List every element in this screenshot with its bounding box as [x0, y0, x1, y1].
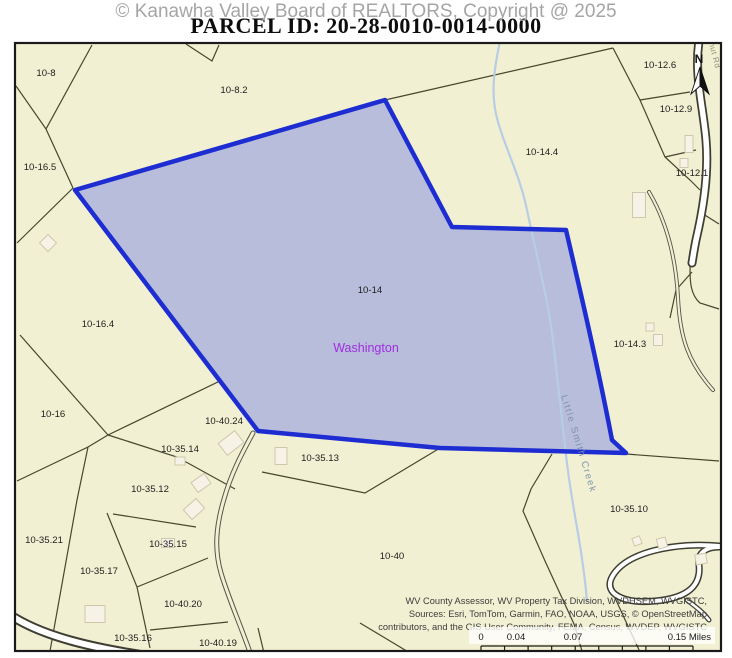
- building-footprint: [656, 537, 667, 549]
- parcel-id-label: 10-35.12: [131, 484, 169, 495]
- parcel-id-label: 10-14.4: [526, 147, 559, 158]
- scale-label: 0: [478, 632, 483, 643]
- attribution-line: Sources: Esri, TomTom, Garmin, FAO, NOAA…: [409, 609, 707, 619]
- parcel-id-label: 10-12.1: [676, 168, 709, 179]
- building-footprint: [175, 457, 185, 465]
- attribution-text: WV County Assessor, WV Property Tax Divi…: [378, 596, 707, 632]
- building-footprint: [685, 136, 693, 153]
- parcel-id-label: 10-14.3: [614, 339, 647, 350]
- parcel-id-label: 10-14: [358, 285, 383, 296]
- parcel-id-label: 10-12.6: [644, 60, 677, 71]
- page-title: PARCEL ID: 20-28-0010-0014-0000: [0, 13, 732, 39]
- parcel-id-label: 10-35.14: [161, 444, 200, 455]
- parcel-id-label: 10-40.24: [205, 416, 244, 427]
- parcel-id-label: 10-8.2: [220, 85, 247, 96]
- scale-label: 0.04: [507, 632, 526, 643]
- parcel-id-label: 10-8: [36, 68, 55, 79]
- attribution-line: WV County Assessor, WV Property Tax Divi…: [405, 596, 707, 606]
- parcel-id-label: 10-16.4: [82, 319, 115, 330]
- parcel-id-label: 10-40.19: [199, 638, 237, 649]
- building-footprint: [275, 448, 287, 465]
- parcel-id-label: 10-40: [380, 551, 405, 562]
- building-footprint: [695, 553, 708, 565]
- parcel-id-label: 10-35.16: [114, 633, 152, 644]
- scale-label: 0.15 Miles: [668, 632, 712, 643]
- parcel-id-label: 10-16.5: [24, 162, 57, 173]
- place-label-washington: Washington: [333, 341, 399, 355]
- building-footprint: [633, 193, 646, 218]
- north-arrow-letter: N: [695, 52, 704, 66]
- parcel-id-label: 10-35.10: [610, 504, 648, 515]
- building-footprint: [646, 323, 654, 331]
- parcel-map: Washington Little Smith Creek nut Rd 10-…: [0, 0, 732, 658]
- building-footprint: [680, 159, 688, 168]
- parcel-id-label: 10-16: [41, 409, 66, 420]
- scale-label: 0.07: [564, 632, 583, 643]
- parcel-id-label: 10-35.15: [149, 539, 187, 550]
- parcel-id-label: 10-40.20: [164, 599, 202, 610]
- parcel-id-label: 10-35.21: [25, 535, 63, 546]
- parcel-id-label: 10-35.13: [301, 453, 339, 464]
- building-footprint: [654, 335, 663, 346]
- parcel-id-label: 10-12.9: [660, 104, 693, 115]
- parcel-id-label: 10-35.17: [80, 566, 118, 577]
- building-footprint: [85, 606, 105, 623]
